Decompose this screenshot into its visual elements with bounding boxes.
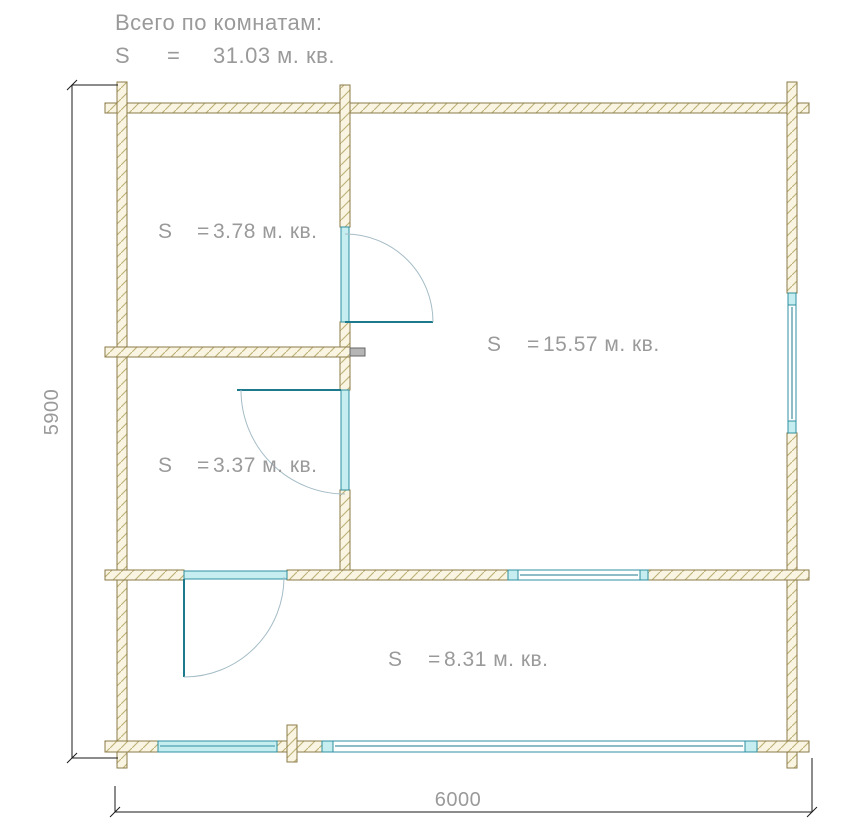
main-room-area-value: 15.57 м. кв. xyxy=(543,333,660,356)
floor-plan-drawing: Всего по комнатам: S = 31.03 м. кв. xyxy=(0,0,850,820)
bottom-room-area-eq: = xyxy=(428,648,441,671)
room1-area-value: 3.78 м. кв. xyxy=(213,220,318,243)
door-swing-arc xyxy=(345,234,433,322)
window-bottom-left xyxy=(158,741,277,752)
bottom-wall-post xyxy=(287,725,297,762)
door-frame-strip xyxy=(341,227,349,322)
total-area-s: S xyxy=(115,43,130,68)
interior-wall-vertical-lower xyxy=(340,490,350,580)
right-wall-upper xyxy=(787,82,797,293)
interior-wall-vertical-upper xyxy=(340,85,350,227)
door-top-left-room xyxy=(341,227,433,322)
door-bottom-room xyxy=(184,571,287,677)
door-swing-arc xyxy=(241,390,345,494)
bottom-wall-mid-segment xyxy=(277,741,322,752)
room2-area-s: S xyxy=(158,454,173,477)
wall-junction-stub xyxy=(350,348,365,356)
room2-area-eq: = xyxy=(197,454,210,477)
interior-wall-horizontal-left xyxy=(105,347,350,357)
door-frame-strip xyxy=(341,390,349,490)
door-swing-arc xyxy=(184,577,284,677)
top-wall xyxy=(105,103,809,113)
total-area-eq: = xyxy=(167,43,180,68)
right-wall-lower xyxy=(787,433,797,768)
room1-area-s: S xyxy=(158,220,173,243)
window-right-wall xyxy=(788,293,796,433)
floor-plan-canvas: Всего по комнатам: S = 31.03 м. кв. xyxy=(0,0,850,820)
main-room-area-eq: = xyxy=(527,333,540,356)
door-frame-strip xyxy=(184,571,287,579)
left-wall xyxy=(117,82,127,768)
bottom-wall-left-segment xyxy=(105,741,160,752)
summary-title: Всего по комнатам: xyxy=(115,10,323,35)
window-bottom-main xyxy=(322,741,757,752)
main-room-area-s: S xyxy=(487,333,502,356)
dimension-vertical xyxy=(67,80,118,763)
door-mid-left-room xyxy=(237,390,349,494)
room2-area-value: 3.37 м. кв. xyxy=(213,454,318,477)
window-middle-wall xyxy=(508,570,648,580)
bottom-room-area-s: S xyxy=(388,648,403,671)
bottom-wall-right-segment xyxy=(757,741,809,752)
dimension-label-height: 5900 xyxy=(41,389,63,436)
total-area-value: 31.03 м. кв. xyxy=(213,43,335,68)
room-area-labels: S = 3.78 м. кв. S = 15.57 м. кв. S = 3.3… xyxy=(158,220,660,671)
room1-area-eq: = xyxy=(197,220,210,243)
middle-wall-center-segment xyxy=(287,570,508,580)
middle-wall-right-segment xyxy=(648,570,809,580)
dimension-label-width: 6000 xyxy=(435,789,482,811)
middle-wall-left-segment xyxy=(105,570,184,580)
bottom-room-area-value: 8.31 м. кв. xyxy=(444,648,549,671)
